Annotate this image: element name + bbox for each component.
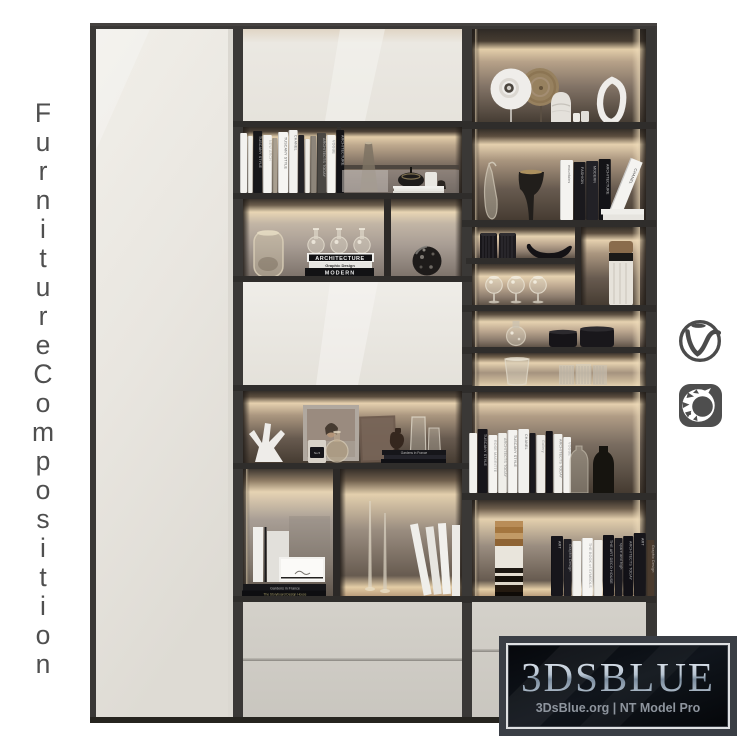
- svg-text:TUSCANY STYLE: TUSCANY STYLE: [483, 434, 487, 466]
- svg-text:ARCHITECTS TODAY: ARCHITECTS TODAY: [629, 541, 633, 581]
- svg-text:o: o: [36, 475, 51, 505]
- svg-text:r: r: [39, 301, 48, 331]
- svg-text:t: t: [39, 243, 47, 273]
- svg-text:spare and high: spare and high: [619, 543, 623, 570]
- svg-text:NEW ARCH: NEW ARCH: [268, 140, 272, 161]
- svg-text:s: s: [36, 504, 49, 534]
- svg-text:The Storyboard Design House: The Storyboard Design House: [264, 593, 307, 597]
- svg-text:u: u: [36, 127, 51, 157]
- svg-text:o: o: [36, 620, 51, 650]
- svg-text:n: n: [36, 649, 51, 679]
- svg-text:Graphic Design: Graphic Design: [651, 545, 655, 573]
- svg-text:r: r: [39, 156, 48, 186]
- svg-text:VOGUE: VOGUE: [332, 140, 336, 154]
- svg-text:3DsBlue.org | NT Model Pro: 3DsBlue.org | NT Model Pro: [536, 701, 701, 715]
- svg-text:C: C: [33, 359, 52, 389]
- svg-text:ARCHITECTS TODAY: ARCHITECTS TODAY: [322, 138, 326, 178]
- svg-text:Gardens in France: Gardens in France: [401, 451, 428, 455]
- svg-text:i: i: [40, 214, 46, 244]
- svg-text:ARCHITECTURE: ARCHITECTURE: [315, 256, 364, 262]
- svg-text:Graphic Design: Graphic Design: [568, 544, 572, 572]
- svg-text:TUSCANY STYLE: TUSCANY STYLE: [513, 435, 517, 467]
- svg-text:i: i: [40, 591, 46, 621]
- svg-text:No.5: No.5: [314, 451, 321, 455]
- svg-text:ARCHITECTS TODAY: ARCHITECTS TODAY: [558, 439, 562, 479]
- svg-text:3DSBLUE: 3DSBLUE: [521, 654, 715, 700]
- svg-text:CHANEL: CHANEL: [294, 135, 298, 151]
- svg-text:m: m: [32, 417, 54, 447]
- svg-text:MODERN: MODERN: [325, 271, 355, 277]
- svg-text:THE ART DECO HOUSE: THE ART DECO HOUSE: [609, 540, 613, 584]
- svg-text:Gallery: Gallery: [541, 440, 545, 453]
- svg-text:TUSCANY STYLE: TUSCANY STYLE: [284, 137, 288, 169]
- svg-text:ART: ART: [640, 538, 644, 546]
- svg-text:o: o: [36, 388, 51, 418]
- svg-text:n: n: [36, 185, 51, 215]
- svg-text:Gardens in France: Gardens in France: [270, 587, 300, 591]
- svg-text:ARCHITECTS TODAY: ARCHITECTS TODAY: [503, 438, 507, 478]
- svg-text:F: F: [35, 98, 51, 128]
- svg-text:e: e: [36, 330, 51, 360]
- svg-text:VOGUE: VOGUE: [568, 442, 572, 456]
- svg-text:ROSE MAGRITTE: ROSE MAGRITTE: [493, 440, 497, 473]
- svg-text:ARCHITECTURE: ARCHITECTURE: [341, 135, 345, 166]
- svg-text:mountains: mountains: [567, 165, 571, 183]
- svg-text:FASHION: FASHION: [580, 167, 584, 184]
- svg-text:TUSCANY STYLE: TUSCANY STYLE: [258, 136, 262, 168]
- svg-text:THE BOOK of SYMBOLS: THE BOOK of SYMBOLS: [588, 543, 592, 588]
- svg-text:i: i: [40, 533, 46, 563]
- svg-text:ART: ART: [558, 541, 562, 549]
- svg-text:Graphic Design: Graphic Design: [325, 263, 355, 268]
- svg-text:p: p: [36, 446, 51, 476]
- svg-text:u: u: [36, 272, 51, 302]
- svg-text:t: t: [39, 562, 47, 592]
- svg-text:CHANEL: CHANEL: [524, 434, 528, 450]
- svg-text:ARCHITECTURE: ARCHITECTURE: [605, 164, 609, 195]
- svg-text:MODERN: MODERN: [593, 166, 597, 183]
